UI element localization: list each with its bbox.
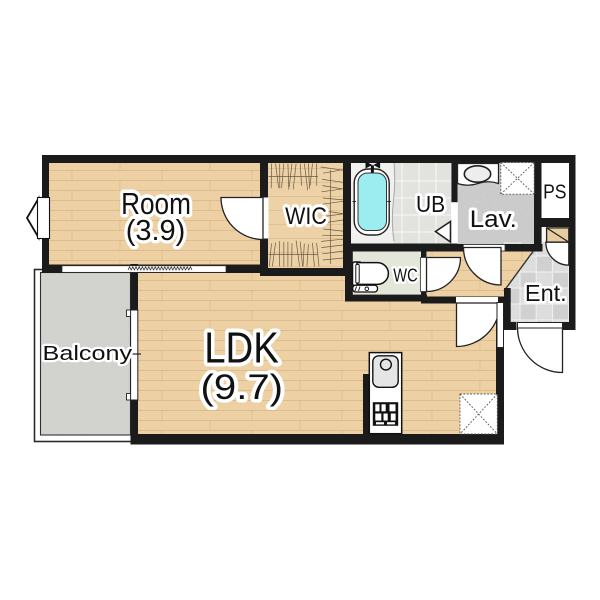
svg-text:LDK: LDK [204, 323, 279, 372]
svg-text:Lav.: Lav. [470, 206, 517, 233]
svg-text:Balcony: Balcony [43, 341, 133, 364]
svg-text:Ent.: Ent. [525, 280, 567, 306]
svg-text:(3.9): (3.9) [126, 215, 186, 247]
svg-text:PS: PS [543, 181, 566, 203]
svg-text:(9.7): (9.7) [201, 367, 284, 406]
svg-text:WC: WC [393, 265, 417, 286]
svg-text:WIC: WIC [285, 202, 327, 230]
svg-text:UB: UB [416, 191, 445, 217]
